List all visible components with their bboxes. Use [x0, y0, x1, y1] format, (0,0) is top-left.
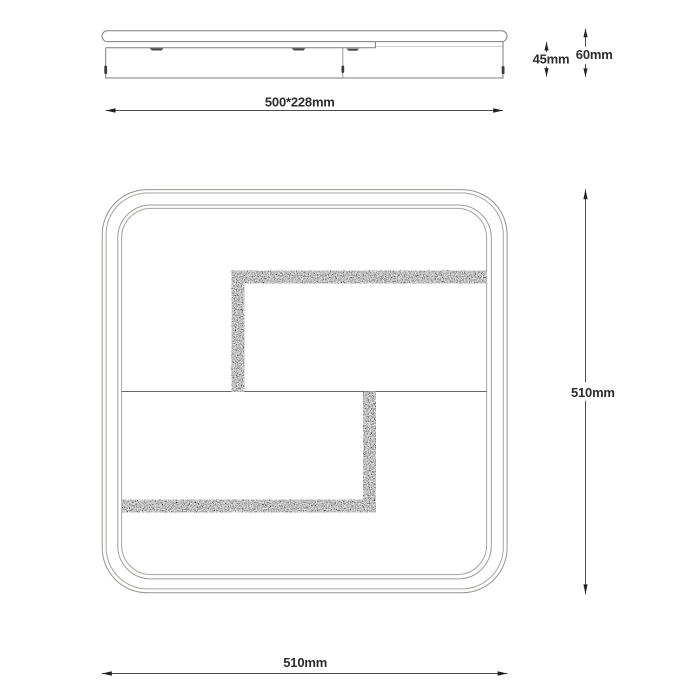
svg-text:510mm: 510mm: [283, 655, 327, 670]
svg-text:45mm: 45mm: [533, 52, 570, 67]
svg-text:510mm: 510mm: [571, 385, 615, 400]
svg-text:60mm: 60mm: [576, 47, 613, 62]
svg-text:500*228mm: 500*228mm: [265, 95, 335, 110]
